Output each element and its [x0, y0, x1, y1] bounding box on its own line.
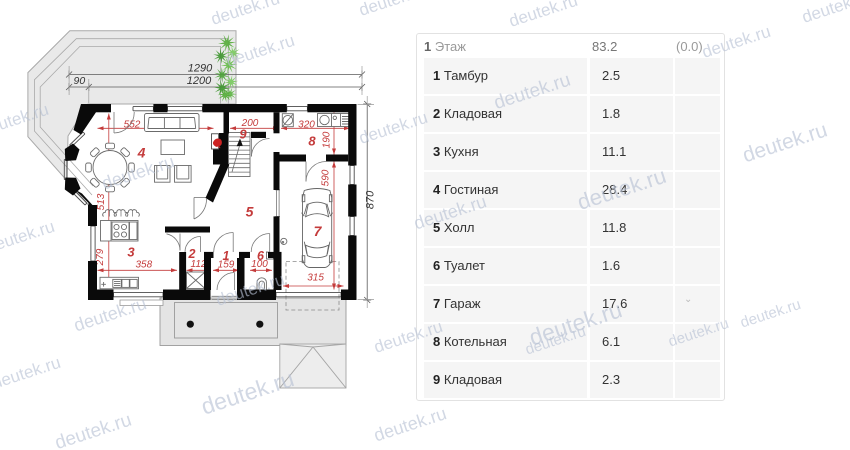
- svg-text:4: 4: [137, 145, 146, 161]
- svg-text:90: 90: [74, 75, 86, 87]
- svg-text:9: 9: [239, 127, 247, 142]
- svg-text:870: 870: [365, 190, 377, 209]
- svg-text:1: 1: [223, 249, 230, 263]
- svg-text:8: 8: [308, 134, 316, 149]
- svg-text:315: 315: [307, 273, 324, 284]
- svg-text:6: 6: [257, 249, 265, 263]
- svg-text:1200: 1200: [187, 75, 212, 87]
- svg-text:513: 513: [96, 193, 107, 210]
- svg-text:2: 2: [188, 247, 196, 261]
- svg-text:1290: 1290: [188, 63, 213, 75]
- svg-text:3: 3: [127, 245, 135, 260]
- svg-text:5: 5: [246, 204, 254, 220]
- svg-text:320: 320: [298, 120, 315, 131]
- svg-text:358: 358: [135, 260, 152, 271]
- svg-text:7: 7: [314, 223, 323, 239]
- svg-text:190: 190: [322, 131, 333, 148]
- svg-text:590: 590: [321, 169, 332, 186]
